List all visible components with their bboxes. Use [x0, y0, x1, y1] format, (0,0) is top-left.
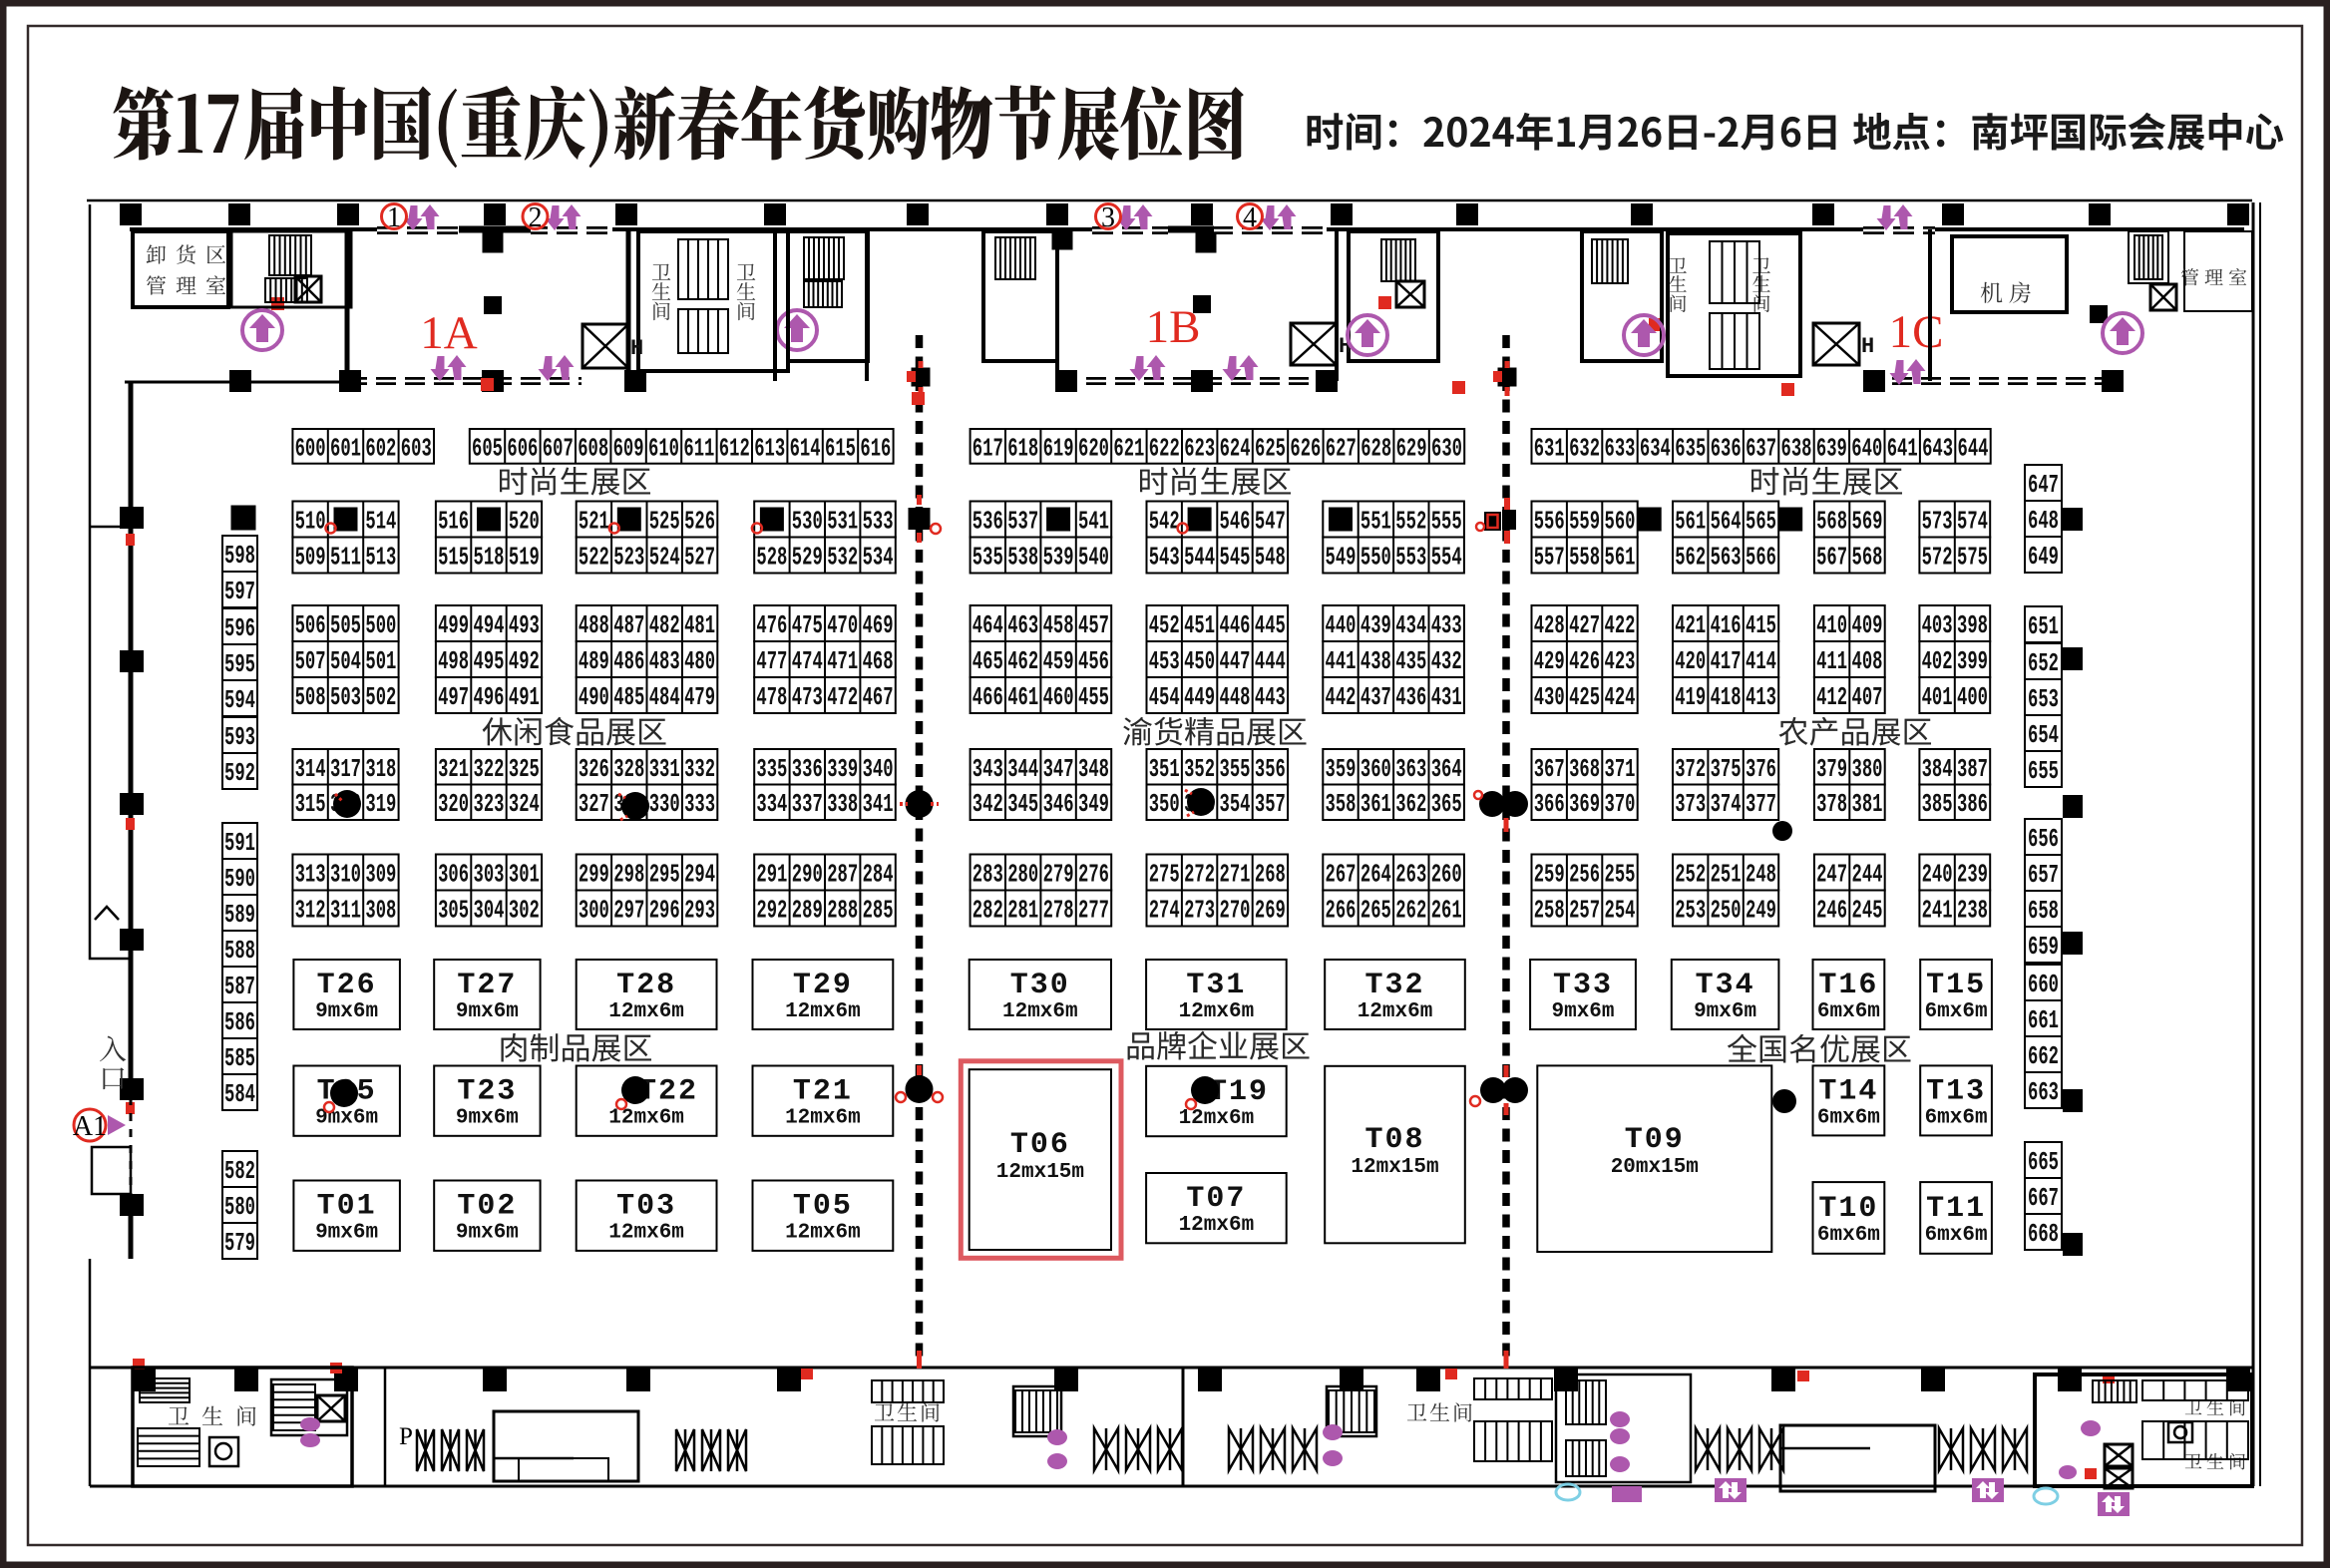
svg-text:285: 285 — [863, 896, 894, 926]
svg-text:第17届中国(重庆)新春年货购物节展位图: 第17届中国(重庆)新春年货购物节展位图 — [112, 64, 1247, 176]
svg-text:464: 464 — [972, 610, 1003, 640]
svg-text:12mx6m: 12mx6m — [785, 1000, 861, 1023]
svg-text:423: 423 — [1605, 646, 1636, 676]
svg-text:416: 416 — [1711, 610, 1742, 640]
svg-text:558: 558 — [1569, 543, 1600, 573]
svg-text:1A: 1A — [420, 307, 478, 359]
svg-text:435: 435 — [1395, 646, 1426, 676]
svg-text:538: 538 — [1007, 543, 1038, 573]
svg-text:461: 461 — [1007, 682, 1038, 712]
svg-text:305: 305 — [438, 896, 469, 926]
svg-text:457: 457 — [1078, 610, 1109, 640]
svg-text:567: 567 — [1816, 543, 1847, 573]
svg-text:12mx6m: 12mx6m — [608, 1222, 684, 1245]
svg-text:298: 298 — [613, 860, 644, 890]
svg-text:241: 241 — [1922, 896, 1953, 926]
svg-text:588: 588 — [224, 936, 255, 966]
svg-text:468: 468 — [863, 646, 894, 676]
svg-text:596: 596 — [224, 613, 255, 643]
svg-text:375: 375 — [1711, 754, 1742, 784]
svg-text:460: 460 — [1043, 682, 1074, 712]
svg-text:473: 473 — [792, 682, 823, 712]
svg-text:T11: T11 — [1926, 1192, 1986, 1226]
svg-text:537: 537 — [1007, 507, 1038, 537]
svg-text:653: 653 — [2028, 684, 2059, 714]
svg-text:601: 601 — [330, 433, 361, 463]
svg-text:卸货区: 卸货区 — [146, 239, 235, 269]
svg-text:T21: T21 — [793, 1075, 853, 1109]
svg-text:476: 476 — [756, 610, 787, 640]
svg-text:T33: T33 — [1553, 969, 1613, 1002]
svg-text:295: 295 — [649, 860, 680, 890]
svg-text:559: 559 — [1569, 507, 1600, 537]
svg-text:332: 332 — [684, 754, 715, 784]
svg-text:618: 618 — [1007, 433, 1038, 463]
svg-text:472: 472 — [827, 682, 858, 712]
svg-text:287: 287 — [827, 860, 858, 890]
svg-text:590: 590 — [224, 864, 255, 894]
svg-text:T13: T13 — [1926, 1074, 1986, 1108]
svg-text:447: 447 — [1220, 646, 1251, 676]
svg-text:594: 594 — [224, 685, 255, 715]
svg-text:6mx6m: 6mx6m — [1817, 1224, 1880, 1247]
svg-text:T15: T15 — [1926, 969, 1986, 1002]
svg-text:294: 294 — [684, 860, 715, 890]
svg-text:572: 572 — [1922, 543, 1953, 573]
svg-text:267: 267 — [1326, 860, 1357, 890]
svg-text:489: 489 — [579, 646, 609, 676]
svg-text:660: 660 — [2028, 970, 2059, 999]
svg-text:668: 668 — [2028, 1219, 2059, 1249]
svg-text:562: 562 — [1675, 543, 1706, 573]
svg-text:T31: T31 — [1186, 969, 1246, 1002]
svg-text:656: 656 — [2028, 824, 2059, 854]
svg-text:566: 566 — [1746, 543, 1776, 573]
svg-text:509: 509 — [295, 543, 326, 573]
svg-text:544: 544 — [1184, 543, 1215, 573]
svg-text:504: 504 — [330, 646, 361, 676]
svg-text:418: 418 — [1711, 682, 1742, 712]
svg-text:325: 325 — [509, 754, 540, 784]
svg-text:357: 357 — [1255, 789, 1286, 819]
svg-text:9mx6m: 9mx6m — [315, 1222, 378, 1245]
svg-text:302: 302 — [509, 896, 540, 926]
svg-text:657: 657 — [2028, 860, 2059, 890]
svg-text:肉制品展区: 肉制品展区 — [499, 1023, 653, 1068]
svg-text:611: 611 — [683, 433, 714, 463]
svg-text:550: 550 — [1360, 543, 1391, 573]
svg-text:350: 350 — [1149, 789, 1180, 819]
svg-text:619: 619 — [1043, 433, 1074, 463]
svg-text:410: 410 — [1816, 610, 1847, 640]
svg-text:259: 259 — [1534, 860, 1565, 890]
svg-text:卫生间: 卫生间 — [647, 261, 676, 321]
svg-text:12mx6m: 12mx6m — [785, 1107, 861, 1130]
svg-text:卫生间: 卫生间 — [1748, 255, 1775, 313]
svg-text:379: 379 — [1816, 754, 1847, 784]
svg-text:507: 507 — [295, 646, 326, 676]
svg-text:4: 4 — [1243, 202, 1257, 233]
svg-text:546: 546 — [1220, 507, 1251, 537]
svg-text:482: 482 — [649, 610, 680, 640]
svg-text:262: 262 — [1395, 896, 1426, 926]
svg-text:569: 569 — [1852, 507, 1883, 537]
svg-text:385: 385 — [1922, 789, 1953, 819]
svg-text:518: 518 — [474, 543, 505, 573]
svg-text:250: 250 — [1711, 896, 1742, 926]
svg-text:275: 275 — [1149, 860, 1180, 890]
svg-text:445: 445 — [1255, 610, 1286, 640]
svg-text:368: 368 — [1569, 754, 1600, 784]
svg-text:361: 361 — [1360, 789, 1391, 819]
svg-text:281: 281 — [1007, 896, 1038, 926]
svg-text:338: 338 — [827, 789, 858, 819]
svg-text:480: 480 — [684, 646, 715, 676]
svg-text:农产品展区: 农产品展区 — [1778, 707, 1933, 752]
svg-text:574: 574 — [1957, 507, 1988, 537]
svg-text:591: 591 — [224, 828, 255, 858]
svg-text:573: 573 — [1922, 507, 1953, 537]
svg-text:355: 355 — [1220, 754, 1251, 784]
svg-text:610: 610 — [648, 433, 679, 463]
svg-text:556: 556 — [1534, 507, 1565, 537]
svg-text:253: 253 — [1675, 896, 1706, 926]
svg-text:455: 455 — [1078, 682, 1109, 712]
svg-text:417: 417 — [1711, 646, 1742, 676]
svg-text:319: 319 — [365, 789, 396, 819]
svg-text:T03: T03 — [616, 1190, 676, 1224]
svg-text:312: 312 — [295, 896, 326, 926]
svg-text:247: 247 — [1816, 860, 1847, 890]
svg-text:469: 469 — [863, 610, 894, 640]
svg-text:470: 470 — [827, 610, 858, 640]
svg-text:644: 644 — [1958, 433, 1989, 463]
svg-text:446: 446 — [1220, 610, 1251, 640]
svg-text:587: 587 — [224, 972, 255, 1001]
svg-text:管理室: 管理室 — [146, 270, 235, 300]
svg-text:589: 589 — [224, 900, 255, 930]
svg-text:441: 441 — [1326, 646, 1357, 676]
svg-text:636: 636 — [1711, 433, 1742, 463]
svg-text:310: 310 — [330, 860, 361, 890]
svg-text:524: 524 — [649, 543, 680, 573]
svg-text:402: 402 — [1922, 646, 1953, 676]
svg-text:252: 252 — [1675, 860, 1706, 890]
svg-text:T16: T16 — [1818, 969, 1878, 1002]
svg-text:12mx15m: 12mx15m — [996, 1161, 1084, 1184]
svg-text:399: 399 — [1957, 646, 1988, 676]
svg-text:474: 474 — [792, 646, 823, 676]
svg-text:273: 273 — [1184, 896, 1215, 926]
svg-text:9mx6m: 9mx6m — [1551, 1000, 1614, 1023]
svg-text:264: 264 — [1360, 860, 1391, 890]
svg-text:282: 282 — [972, 896, 1003, 926]
svg-text:258: 258 — [1534, 896, 1565, 926]
svg-text:244: 244 — [1852, 860, 1883, 890]
svg-text:501: 501 — [365, 646, 396, 676]
svg-text:卫生间: 卫生间 — [168, 1400, 269, 1431]
svg-text:658: 658 — [2028, 896, 2059, 926]
svg-text:348: 348 — [1078, 754, 1109, 784]
svg-text:9mx6m: 9mx6m — [456, 1000, 519, 1023]
svg-text:344: 344 — [1007, 754, 1038, 784]
svg-text:255: 255 — [1605, 860, 1636, 890]
svg-text:时尚生展区: 时尚生展区 — [1138, 457, 1293, 502]
svg-text:452: 452 — [1149, 610, 1180, 640]
svg-text:442: 442 — [1326, 682, 1357, 712]
svg-text:358: 358 — [1326, 789, 1357, 819]
svg-text:T01: T01 — [317, 1190, 377, 1224]
svg-text:532: 532 — [827, 543, 858, 573]
svg-text:245: 245 — [1852, 896, 1883, 926]
svg-text:T32: T32 — [1364, 969, 1424, 1002]
svg-text:256: 256 — [1569, 860, 1600, 890]
svg-text:308: 308 — [365, 896, 396, 926]
svg-text:A1: A1 — [73, 1111, 107, 1142]
svg-text:T26: T26 — [317, 969, 377, 1002]
svg-text:555: 555 — [1431, 507, 1462, 537]
svg-text:12mx6m: 12mx6m — [1358, 1000, 1433, 1023]
svg-text:510: 510 — [295, 507, 326, 537]
svg-text:293: 293 — [684, 896, 715, 926]
svg-text:321: 321 — [438, 754, 469, 784]
svg-text:323: 323 — [474, 789, 505, 819]
svg-text:306: 306 — [438, 860, 469, 890]
svg-text:314: 314 — [295, 754, 326, 784]
svg-text:337: 337 — [792, 789, 823, 819]
svg-text:459: 459 — [1043, 646, 1074, 676]
svg-text:254: 254 — [1605, 896, 1636, 926]
svg-text:362: 362 — [1395, 789, 1426, 819]
svg-text:T07: T07 — [1186, 1182, 1246, 1216]
svg-text:525: 525 — [649, 507, 680, 537]
svg-text:3: 3 — [1101, 202, 1115, 233]
svg-text:9mx6m: 9mx6m — [315, 1000, 378, 1023]
svg-text:527: 527 — [684, 543, 715, 573]
svg-text:659: 659 — [2028, 932, 2059, 962]
svg-text:时尚生展区: 时尚生展区 — [1749, 457, 1904, 502]
svg-text:651: 651 — [2028, 611, 2059, 641]
svg-text:H: H — [630, 336, 643, 361]
svg-text:522: 522 — [579, 543, 609, 573]
svg-text:机房: 机房 — [1980, 275, 2038, 308]
svg-text:552: 552 — [1395, 507, 1426, 537]
svg-text:648: 648 — [2028, 506, 2059, 536]
svg-text:432: 432 — [1431, 646, 1462, 676]
svg-text:492: 492 — [509, 646, 540, 676]
svg-text:时间：2024年1月26日-2月6日 地点：南坪国际会展中: 时间：2024年1月26日-2月6日 地点：南坪国际会展中心 — [1305, 101, 2284, 159]
svg-text:299: 299 — [579, 860, 609, 890]
svg-text:540: 540 — [1078, 543, 1109, 573]
svg-text:377: 377 — [1746, 789, 1776, 819]
svg-text:387: 387 — [1957, 754, 1988, 784]
svg-text:479: 479 — [684, 682, 715, 712]
svg-text:557: 557 — [1534, 543, 1565, 573]
svg-text:6mx6m: 6mx6m — [1925, 1224, 1988, 1247]
svg-text:246: 246 — [1816, 896, 1847, 926]
svg-text:268: 268 — [1255, 860, 1286, 890]
svg-text:631: 631 — [1534, 433, 1565, 463]
svg-text:500: 500 — [365, 610, 396, 640]
svg-text:614: 614 — [790, 433, 821, 463]
svg-text:251: 251 — [1711, 860, 1742, 890]
svg-text:269: 269 — [1255, 896, 1286, 926]
svg-text:339: 339 — [827, 754, 858, 784]
svg-text:315: 315 — [295, 789, 326, 819]
svg-text:360: 360 — [1360, 754, 1391, 784]
svg-text:541: 541 — [1078, 507, 1109, 537]
svg-text:369: 369 — [1569, 789, 1600, 819]
svg-text:卫生间: 卫生间 — [1406, 1397, 1475, 1427]
svg-text:T30: T30 — [1010, 969, 1070, 1002]
svg-text:365: 365 — [1431, 789, 1462, 819]
svg-text:497: 497 — [438, 682, 469, 712]
svg-text:426: 426 — [1569, 646, 1600, 676]
svg-text:265: 265 — [1360, 896, 1391, 926]
svg-text:413: 413 — [1746, 682, 1776, 712]
svg-text:626: 626 — [1290, 433, 1321, 463]
svg-text:434: 434 — [1395, 610, 1426, 640]
svg-text:327: 327 — [579, 789, 609, 819]
svg-text:436: 436 — [1395, 682, 1426, 712]
svg-text:1: 1 — [387, 202, 401, 233]
svg-text:297: 297 — [613, 896, 644, 926]
svg-text:663: 663 — [2028, 1077, 2059, 1107]
svg-text:326: 326 — [579, 754, 609, 784]
svg-text:543: 543 — [1149, 543, 1180, 573]
svg-text:409: 409 — [1852, 610, 1883, 640]
svg-text:437: 437 — [1360, 682, 1391, 712]
svg-text:502: 502 — [365, 682, 396, 712]
svg-text:6mx6m: 6mx6m — [1925, 1000, 1988, 1023]
svg-text:248: 248 — [1746, 860, 1776, 890]
svg-text:364: 364 — [1431, 754, 1462, 784]
svg-text:380: 380 — [1852, 754, 1883, 784]
svg-text:451: 451 — [1184, 610, 1215, 640]
svg-text:12mx6m: 12mx6m — [1002, 1000, 1078, 1023]
svg-text:12mx6m: 12mx6m — [1179, 1214, 1255, 1237]
svg-text:T06: T06 — [1010, 1128, 1070, 1162]
svg-text:T05: T05 — [793, 1190, 853, 1224]
svg-text:346: 346 — [1043, 789, 1074, 819]
svg-text:568: 568 — [1816, 507, 1847, 537]
svg-text:565: 565 — [1746, 507, 1776, 537]
svg-text:431: 431 — [1431, 682, 1462, 712]
svg-text:341: 341 — [863, 789, 894, 819]
svg-text:425: 425 — [1569, 682, 1600, 712]
svg-text:378: 378 — [1816, 789, 1847, 819]
svg-text:317: 317 — [330, 754, 361, 784]
svg-text:356: 356 — [1255, 754, 1286, 784]
svg-text:9mx6m: 9mx6m — [456, 1222, 519, 1245]
svg-text:20mx15m: 20mx15m — [1611, 1156, 1699, 1179]
svg-text:602: 602 — [365, 433, 396, 463]
svg-text:322: 322 — [474, 754, 505, 784]
svg-text:257: 257 — [1569, 896, 1600, 926]
svg-text:505: 505 — [330, 610, 361, 640]
svg-text:516: 516 — [438, 507, 469, 537]
svg-text:595: 595 — [224, 649, 255, 679]
svg-text:628: 628 — [1360, 433, 1391, 463]
svg-text:450: 450 — [1184, 646, 1215, 676]
svg-text:629: 629 — [1396, 433, 1427, 463]
svg-text:429: 429 — [1534, 646, 1565, 676]
svg-text:513: 513 — [365, 543, 396, 573]
svg-text:422: 422 — [1605, 610, 1636, 640]
svg-text:592: 592 — [224, 758, 255, 788]
svg-text:521: 521 — [579, 507, 609, 537]
svg-text:584: 584 — [224, 1079, 255, 1109]
svg-text:564: 564 — [1711, 507, 1742, 537]
svg-text:549: 549 — [1326, 543, 1357, 573]
svg-text:466: 466 — [972, 682, 1003, 712]
svg-text:647: 647 — [2028, 470, 2059, 500]
svg-text:408: 408 — [1852, 646, 1883, 676]
svg-text:9mx6m: 9mx6m — [456, 1107, 519, 1130]
svg-text:603: 603 — [401, 433, 432, 463]
svg-text:366: 366 — [1534, 789, 1565, 819]
svg-text:卫生间: 卫生间 — [1665, 255, 1692, 313]
svg-text:536: 536 — [972, 507, 1003, 537]
svg-text:324: 324 — [509, 789, 540, 819]
svg-text:335: 335 — [756, 754, 787, 784]
svg-text:398: 398 — [1957, 610, 1988, 640]
svg-text:284: 284 — [863, 860, 894, 890]
svg-text:333: 333 — [684, 789, 715, 819]
svg-text:643: 643 — [1922, 433, 1953, 463]
svg-text:276: 276 — [1078, 860, 1109, 890]
svg-text:渝货精品展区: 渝货精品展区 — [1122, 707, 1308, 752]
svg-text:296: 296 — [649, 896, 680, 926]
svg-text:575: 575 — [1957, 543, 1988, 573]
svg-text:563: 563 — [1711, 543, 1742, 573]
svg-text:438: 438 — [1360, 646, 1391, 676]
svg-text:456: 456 — [1078, 646, 1109, 676]
svg-text:661: 661 — [2028, 1005, 2059, 1035]
svg-text:263: 263 — [1395, 860, 1426, 890]
svg-text:12mx15m: 12mx15m — [1351, 1156, 1438, 1179]
svg-text:475: 475 — [792, 610, 823, 640]
svg-text:卫生间: 卫生间 — [2184, 1448, 2250, 1474]
svg-text:495: 495 — [474, 646, 505, 676]
svg-text:530: 530 — [792, 507, 823, 537]
svg-text:616: 616 — [860, 433, 891, 463]
svg-text:6mx6m: 6mx6m — [1925, 1106, 1988, 1129]
svg-text:349: 349 — [1078, 789, 1109, 819]
svg-text:T34: T34 — [1696, 969, 1755, 1002]
svg-text:428: 428 — [1534, 610, 1565, 640]
svg-text:597: 597 — [224, 577, 255, 606]
svg-text:381: 381 — [1852, 789, 1883, 819]
svg-text:632: 632 — [1569, 433, 1600, 463]
svg-text:261: 261 — [1431, 896, 1462, 926]
svg-text:542: 542 — [1149, 507, 1180, 537]
svg-text:535: 535 — [972, 543, 1003, 573]
svg-text:374: 374 — [1711, 789, 1742, 819]
svg-text:290: 290 — [792, 860, 823, 890]
svg-text:649: 649 — [2028, 542, 2059, 572]
svg-text:372: 372 — [1675, 754, 1706, 784]
svg-text:458: 458 — [1043, 610, 1074, 640]
svg-text:553: 553 — [1395, 543, 1426, 573]
svg-text:351: 351 — [1149, 754, 1180, 784]
svg-text:240: 240 — [1922, 860, 1953, 890]
svg-text:340: 340 — [863, 754, 894, 784]
svg-text:548: 548 — [1255, 543, 1286, 573]
svg-text:277: 277 — [1078, 896, 1109, 926]
svg-text:440: 440 — [1326, 610, 1357, 640]
svg-text:528: 528 — [756, 543, 787, 573]
